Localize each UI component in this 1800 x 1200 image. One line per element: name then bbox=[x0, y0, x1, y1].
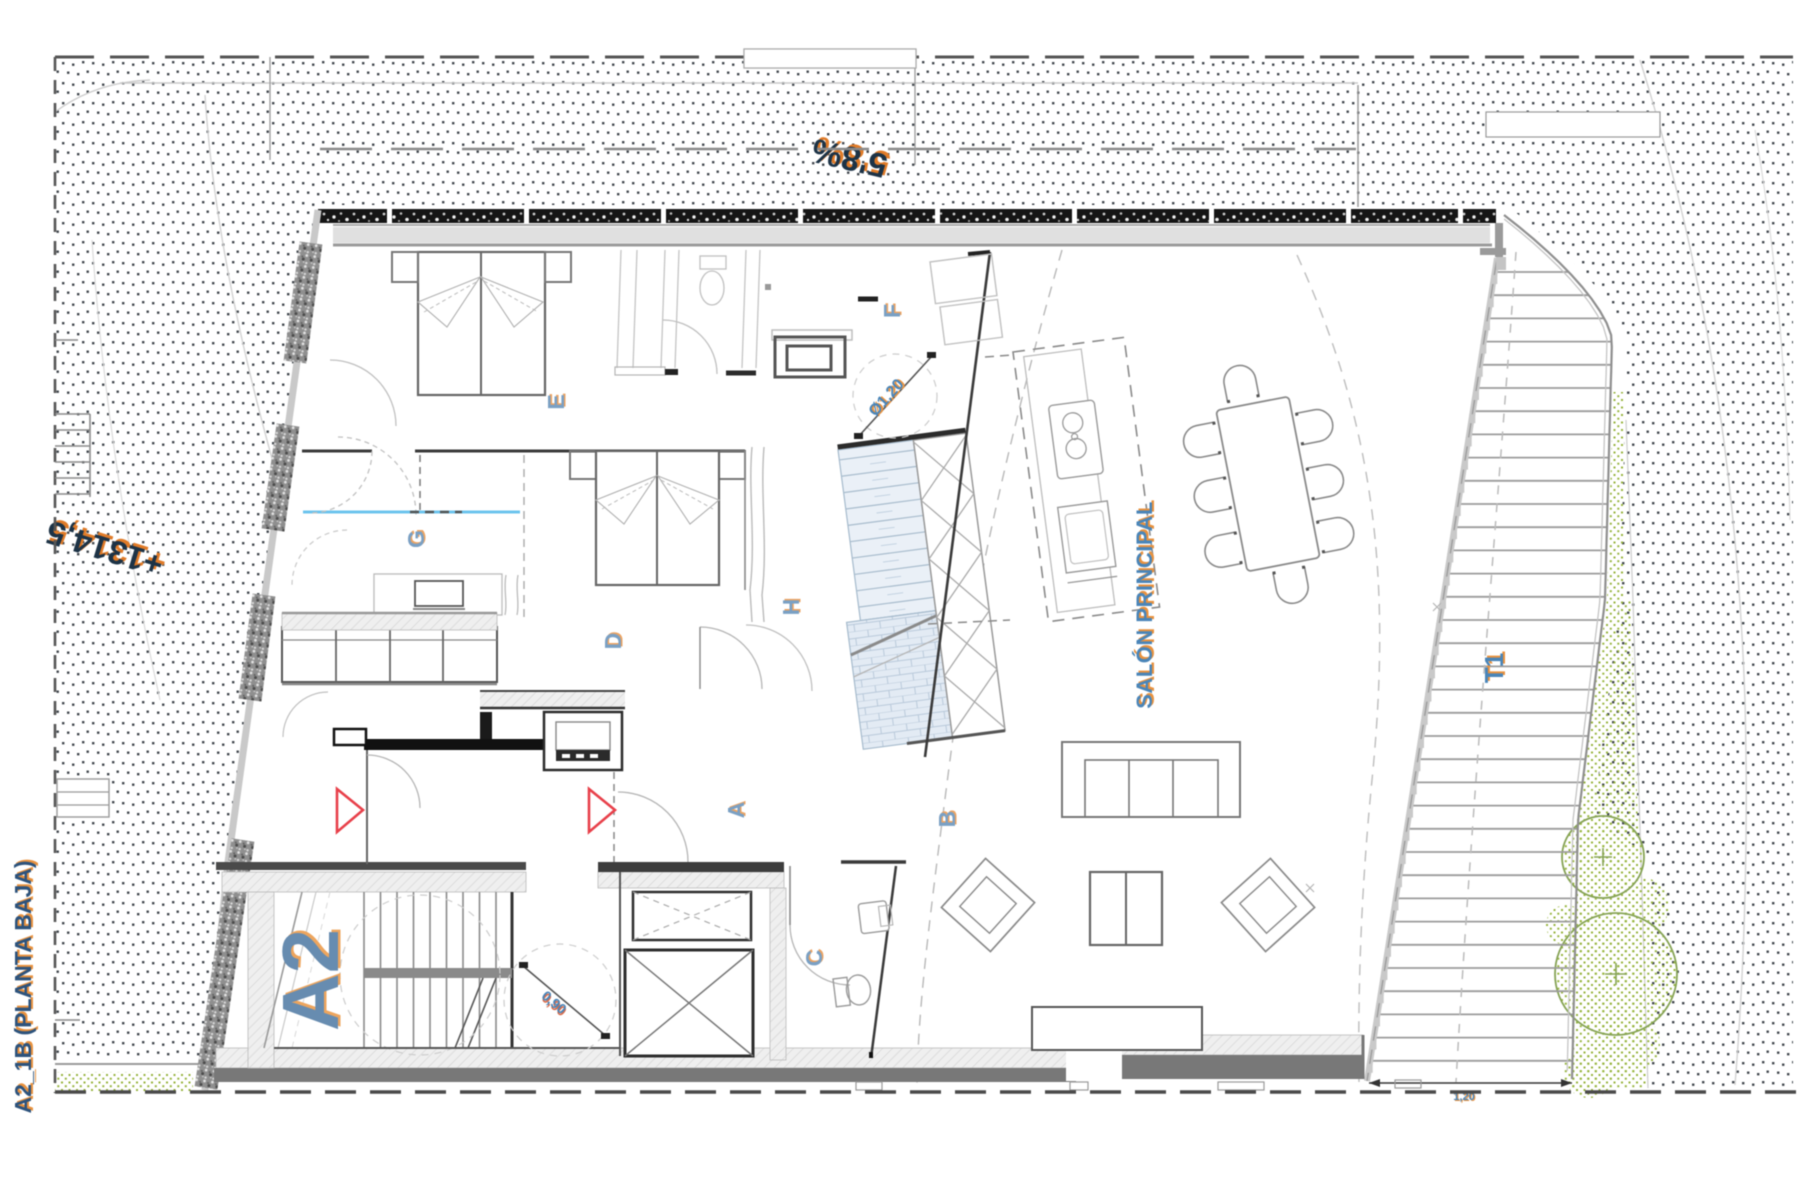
svg-text:SALÓN PRINCIPAL: SALÓN PRINCIPAL bbox=[1132, 501, 1157, 709]
svg-text:D: D bbox=[600, 633, 626, 650]
svg-text:A: A bbox=[723, 802, 749, 819]
svg-text:E: E bbox=[543, 394, 569, 409]
svg-text:C: C bbox=[801, 950, 827, 967]
svg-text:G: G bbox=[403, 530, 429, 548]
svg-text:B: B bbox=[934, 811, 960, 828]
svg-text:T1: T1 bbox=[1479, 653, 1509, 683]
svg-text:A2_1B (PLANTA BAJA): A2_1B (PLANTA BAJA) bbox=[10, 860, 36, 1113]
svg-text:A2: A2 bbox=[266, 929, 355, 1031]
svg-text:F: F bbox=[879, 304, 905, 318]
svg-text:H: H bbox=[778, 599, 804, 616]
